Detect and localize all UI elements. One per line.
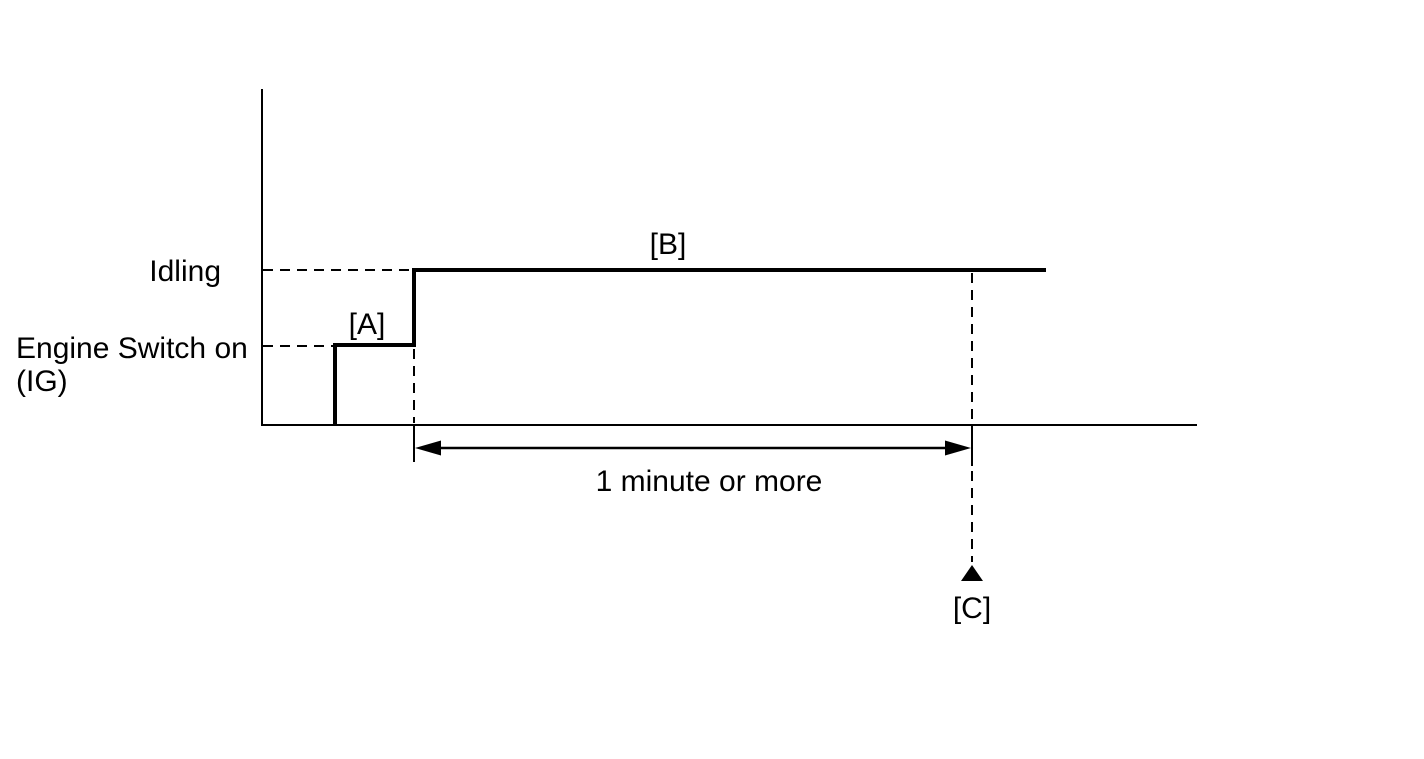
- marker-b-label: [B]: [650, 228, 687, 261]
- timing-diagram: Idling Engine Switch on (IG) [A] [B] [C]…: [0, 0, 1424, 759]
- idling-level-label: Idling: [149, 255, 221, 288]
- duration-arrow-left-head-icon: [415, 441, 441, 456]
- signal-trace: [335, 270, 1046, 425]
- engine-switch-level-label-line1: Engine Switch on: [16, 332, 248, 365]
- marker-a-label: [A]: [349, 308, 386, 341]
- marker-c-pointer-triangle-icon: [961, 565, 983, 581]
- engine-switch-level-label-line2: (IG): [16, 365, 68, 398]
- marker-c-label: [C]: [953, 592, 991, 625]
- timing-diagram-canvas: Idling Engine Switch on (IG) [A] [B] [C]…: [0, 0, 1424, 759]
- duration-label: 1 minute or more: [596, 465, 823, 498]
- duration-arrow-right-head-icon: [945, 441, 971, 456]
